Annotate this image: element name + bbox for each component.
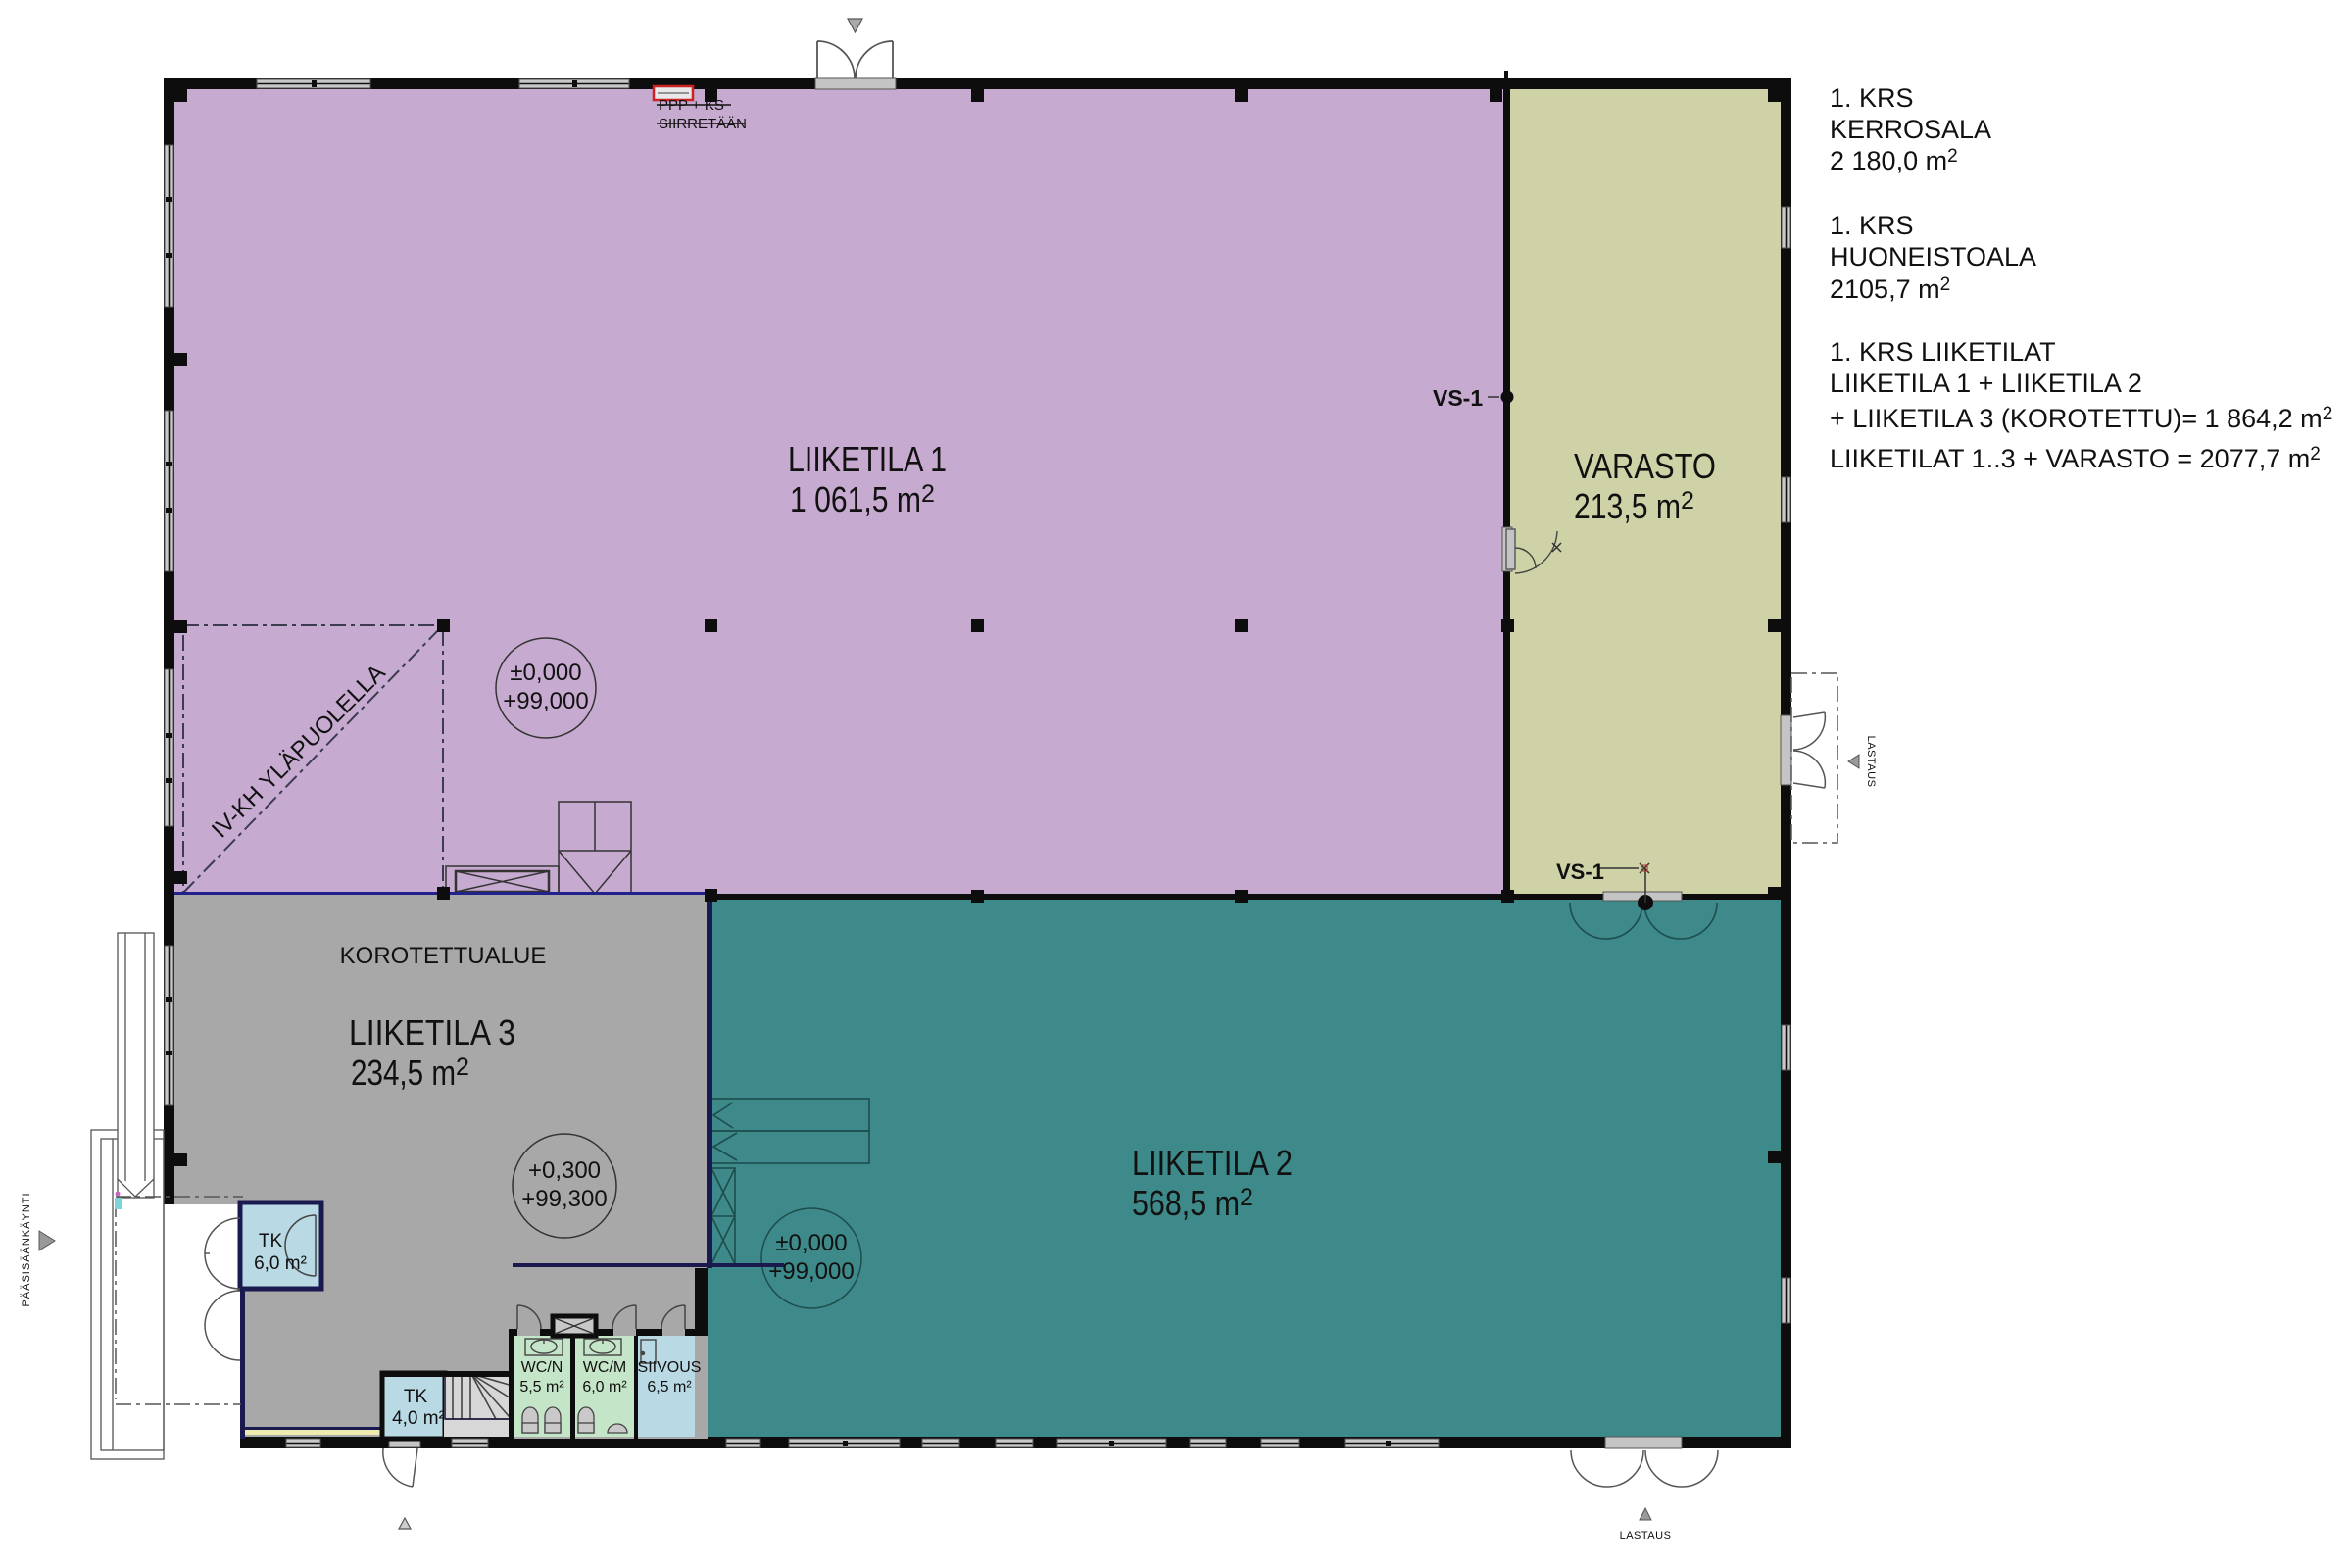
svg-text:6,0 m²: 6,0 m² (254, 1253, 307, 1274)
svg-text:VS-1: VS-1 (1433, 385, 1483, 411)
svg-text:+0,300: +0,300 (528, 1157, 601, 1184)
svg-text:LIIKETILA 1 + LIIKETILA 2: LIIKETILA 1 + LIIKETILA 2 (1830, 368, 2142, 398)
svg-text:LIIKETILA 2: LIIKETILA 2 (1132, 1143, 1293, 1183)
svg-text:WC/N: WC/N (521, 1359, 563, 1376)
svg-text:VS-1: VS-1 (1556, 859, 1604, 884)
svg-text:1 061,5 m2: 1 061,5 m2 (790, 479, 935, 519)
svg-text:LASTAUS: LASTAUS (1620, 1530, 1672, 1542)
svg-text:PÄÄSISÄÄNKÄYNTI: PÄÄSISÄÄNKÄYNTI (21, 1192, 32, 1306)
svg-text:HUONEISTOALA: HUONEISTOALA (1830, 242, 2036, 271)
svg-text:568,5 m2: 568,5 m2 (1132, 1183, 1253, 1223)
svg-text:TK: TK (404, 1387, 428, 1407)
svg-text:LIIKETILAT 1..3 + VARASTO = 20: LIIKETILAT 1..3 + VARASTO = 2077,7 m2 (1830, 444, 2321, 473)
svg-text:SIIVOUS: SIIVOUS (638, 1359, 702, 1376)
svg-text:WC/M: WC/M (583, 1359, 626, 1376)
svg-text:1. KRS LIIKETILAT: 1. KRS LIIKETILAT (1830, 337, 2056, 367)
svg-text:4,0 m²: 4,0 m² (392, 1408, 445, 1429)
svg-text:5,5 m²: 5,5 m² (519, 1379, 564, 1396)
svg-text:±0,000: ±0,000 (510, 660, 581, 686)
svg-text:TK: TK (259, 1231, 283, 1251)
svg-text:KERROSALA: KERROSALA (1830, 115, 1991, 144)
svg-text:1. KRS: 1. KRS (1830, 83, 1914, 113)
svg-text:213,5 m2: 213,5 m2 (1574, 486, 1694, 526)
svg-text:LASTAUS: LASTAUS (1865, 736, 1877, 788)
svg-text:234,5 m2: 234,5 m2 (351, 1053, 469, 1093)
svg-text:2105,7 m2: 2105,7 m2 (1830, 274, 1950, 304)
svg-text:6,5 m²: 6,5 m² (647, 1379, 692, 1396)
svg-text:+99,300: +99,300 (521, 1186, 607, 1212)
svg-text:LIIKETILA 3: LIIKETILA 3 (349, 1012, 515, 1053)
svg-text:±0,000: ±0,000 (775, 1230, 847, 1256)
svg-text:+99,000: +99,000 (503, 688, 588, 714)
svg-text:2 180,0 m2: 2 180,0 m2 (1830, 146, 1958, 175)
svg-text:KOROTETTUALUE: KOROTETTUALUE (340, 943, 547, 969)
svg-text:VARASTO: VARASTO (1574, 446, 1716, 486)
svg-text:LIIKETILA 1: LIIKETILA 1 (788, 439, 947, 479)
svg-text:+ LIIKETILA 3 (KOROTETTU)= 1 8: + LIIKETILA 3 (KOROTETTU)= 1 864,2 m2 (1830, 404, 2332, 433)
svg-text:+99,000: +99,000 (768, 1258, 854, 1285)
svg-text:6,0 m²: 6,0 m² (582, 1379, 627, 1396)
svg-text:1. KRS: 1. KRS (1830, 211, 1914, 240)
